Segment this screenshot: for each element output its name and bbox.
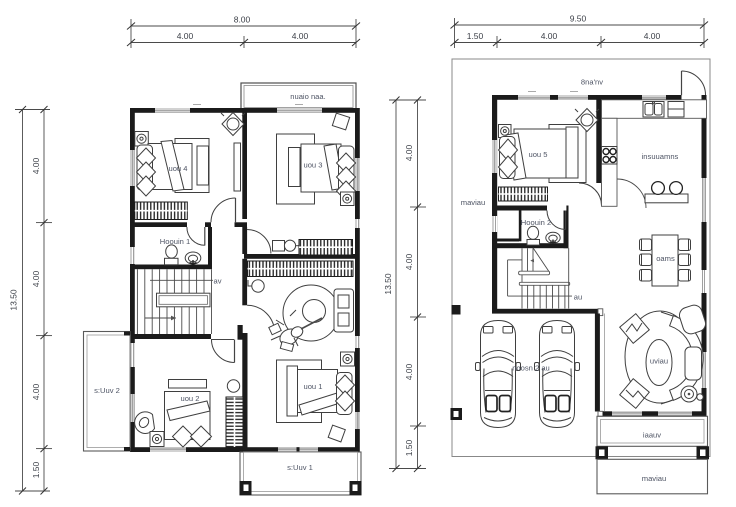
svg-text:8na'nv: 8na'nv [581, 78, 603, 87]
svg-text:4.00: 4.00 [292, 31, 309, 41]
svg-text:au: au [574, 293, 582, 302]
svg-text:uou 1: uou 1 [303, 382, 322, 391]
svg-text:s:Uuv 2: s:Uuv 2 [94, 386, 120, 395]
svg-text:8.00: 8.00 [234, 15, 251, 25]
svg-text:4.00: 4.00 [644, 31, 661, 41]
svg-text:s:Uuv 1: s:Uuv 1 [287, 463, 313, 472]
svg-text:13.50: 13.50 [9, 289, 19, 311]
svg-text:1.50: 1.50 [404, 439, 414, 456]
svg-text:4.00: 4.00 [31, 383, 41, 400]
svg-text:4.00: 4.00 [31, 270, 41, 287]
svg-text:4.00: 4.00 [31, 157, 41, 174]
svg-text:4.00: 4.00 [541, 31, 558, 41]
svg-text:nuaio naa.: nuaio naa. [290, 92, 325, 101]
svg-text:oams: oams [656, 254, 675, 263]
svg-text:9.50: 9.50 [570, 14, 587, 24]
svg-text:1.50: 1.50 [31, 461, 41, 478]
svg-text:insuuamns: insuuamns [642, 152, 679, 161]
svg-text:4.00: 4.00 [404, 253, 414, 270]
svg-text:noosn 2 au: noosn 2 au [512, 364, 550, 373]
svg-text:Hoouin 1: Hoouin 1 [160, 237, 190, 246]
svg-text:1.50: 1.50 [467, 31, 484, 41]
svg-text:uviau: uviau [650, 357, 668, 366]
svg-text:maviau: maviau [642, 474, 666, 483]
svg-text:13.50: 13.50 [383, 273, 393, 295]
svg-text:4.00: 4.00 [404, 363, 414, 380]
svg-text:iaauv: iaauv [643, 431, 661, 440]
svg-text:uou 3: uou 3 [303, 161, 322, 170]
svg-text:maviau: maviau [461, 198, 485, 207]
svg-text:uou 2: uou 2 [180, 394, 199, 403]
svg-text:uou 4: uou 4 [168, 164, 187, 173]
svg-text:Hoouin 2: Hoouin 2 [521, 218, 551, 227]
svg-text:uou 5: uou 5 [528, 150, 547, 159]
svg-text:4.00: 4.00 [177, 31, 194, 41]
svg-text:av: av [213, 277, 221, 286]
svg-text:4.00: 4.00 [404, 144, 414, 161]
